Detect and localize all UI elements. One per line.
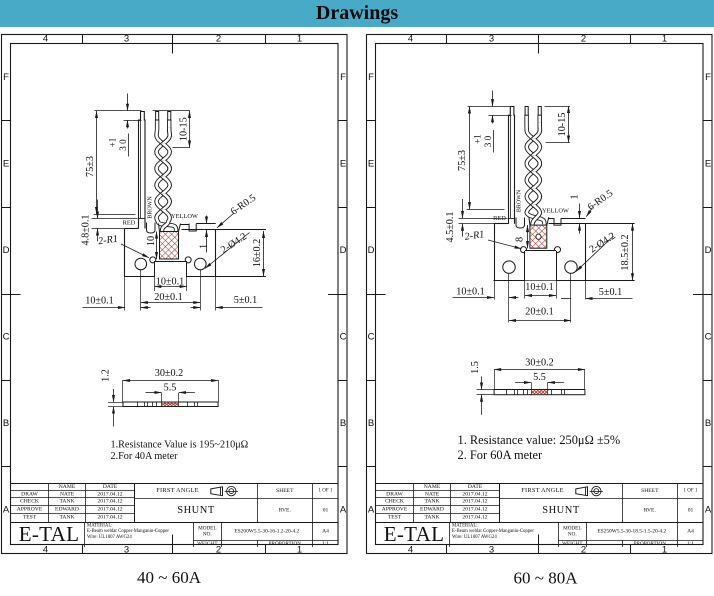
svg-text:WEIGHT: WEIGHT bbox=[197, 541, 218, 547]
svg-text:PROPORTION: PROPORTION bbox=[269, 541, 302, 547]
svg-text:E: E bbox=[340, 159, 346, 170]
svg-text:C: C bbox=[368, 332, 375, 343]
svg-text:4: 4 bbox=[43, 34, 48, 45]
svg-text:A4: A4 bbox=[322, 529, 329, 535]
svg-text:2017.04.12: 2017.04.12 bbox=[97, 499, 122, 505]
svg-text:10-15: 10-15 bbox=[179, 117, 190, 141]
svg-text:1.5: 1.5 bbox=[470, 361, 481, 374]
svg-text:APPROVE: APPROVE bbox=[17, 506, 43, 512]
svg-text:NAME: NAME bbox=[424, 484, 441, 490]
svg-text:18.5±0.2: 18.5±0.2 bbox=[620, 234, 631, 270]
svg-text:E-TAL: E-TAL bbox=[19, 522, 79, 546]
svg-text:+1: +1 bbox=[473, 134, 483, 144]
svg-text:1:1: 1:1 bbox=[687, 541, 694, 547]
svg-text:01: 01 bbox=[688, 508, 694, 514]
svg-text:SHEET: SHEET bbox=[276, 488, 294, 494]
svg-text:PROPORTION: PROPORTION bbox=[634, 541, 667, 547]
svg-text:2. For 60A meter: 2. For 60A meter bbox=[458, 448, 544, 462]
svg-text:C: C bbox=[3, 332, 10, 343]
svg-text:TEST: TEST bbox=[388, 515, 402, 521]
svg-text:DRAW: DRAW bbox=[21, 491, 38, 497]
svg-text:2-Ø4.2: 2-Ø4.2 bbox=[219, 231, 249, 256]
svg-text:2017.04.12: 2017.04.12 bbox=[462, 506, 487, 512]
svg-text:E: E bbox=[3, 159, 9, 170]
svg-text:MATERIAL:: MATERIAL: bbox=[87, 524, 113, 529]
svg-text:3 0: 3 0 bbox=[118, 139, 128, 151]
svg-text:A: A bbox=[340, 505, 347, 516]
svg-text:MATERIAL:: MATERIAL: bbox=[452, 524, 478, 529]
svg-text:E-TAL: E-TAL bbox=[384, 522, 444, 546]
svg-text:3: 3 bbox=[489, 34, 494, 45]
svg-text:DATE: DATE bbox=[468, 484, 483, 490]
svg-text:2: 2 bbox=[216, 34, 221, 45]
svg-text:SHEET: SHEET bbox=[641, 488, 659, 494]
svg-text:2: 2 bbox=[581, 34, 586, 45]
svg-text:4: 4 bbox=[408, 545, 413, 556]
svg-text:MODEL: MODEL bbox=[563, 525, 581, 531]
svg-text:1 OF 1: 1 OF 1 bbox=[684, 488, 698, 493]
svg-text:10±0.1: 10±0.1 bbox=[156, 276, 185, 287]
svg-text:1: 1 bbox=[297, 34, 302, 45]
svg-text:FIRST ANGLE: FIRST ANGLE bbox=[521, 487, 563, 494]
svg-text:20±0.1: 20±0.1 bbox=[525, 307, 554, 318]
svg-text:5.5: 5.5 bbox=[164, 383, 177, 394]
svg-text:2-R1: 2-R1 bbox=[464, 229, 485, 243]
svg-text:Wire: UL1007 AWG24: Wire: UL1007 AWG24 bbox=[452, 535, 497, 540]
svg-text:2-R1: 2-R1 bbox=[97, 234, 118, 248]
svg-text:E-Beam weldar Copper-Manganin-: E-Beam weldar Copper-Manganin-Copper bbox=[452, 529, 534, 534]
svg-text:NO.: NO. bbox=[568, 532, 577, 538]
svg-text:Wire: UL1007 AWG24: Wire: UL1007 AWG24 bbox=[87, 535, 132, 540]
svg-text:WEIGHT: WEIGHT bbox=[562, 541, 583, 547]
svg-text:ES250W5.5-30-18.5-1.5-20-4.2: ES250W5.5-30-18.5-1.5-20-4.2 bbox=[597, 529, 666, 535]
svg-text:2-Ø4.2: 2-Ø4.2 bbox=[588, 231, 618, 256]
svg-text:D: D bbox=[340, 245, 347, 256]
svg-text:5.5: 5.5 bbox=[533, 372, 546, 383]
svg-text:D: D bbox=[368, 245, 375, 256]
svg-text:A4: A4 bbox=[687, 529, 694, 535]
svg-text:10: 10 bbox=[146, 236, 157, 246]
svg-text:CHECK: CHECK bbox=[385, 499, 404, 505]
svg-text:10±0.1: 10±0.1 bbox=[525, 282, 554, 293]
svg-text:F: F bbox=[368, 72, 374, 83]
svg-text:4: 4 bbox=[408, 34, 413, 45]
svg-text:F: F bbox=[705, 72, 711, 83]
svg-text:SHUNT: SHUNT bbox=[177, 505, 215, 516]
svg-text:10±0.1: 10±0.1 bbox=[85, 296, 114, 307]
svg-text:E: E bbox=[705, 159, 711, 170]
svg-text:1.Resistance Value is 195~210μ: 1.Resistance Value is 195~210μΩ bbox=[111, 440, 249, 451]
svg-text:1 OF 1: 1 OF 1 bbox=[319, 488, 333, 493]
svg-text:A: A bbox=[705, 505, 712, 516]
svg-text:2017.04.12: 2017.04.12 bbox=[462, 499, 487, 505]
svg-text:2017.04.12: 2017.04.12 bbox=[97, 491, 122, 497]
svg-text:RVE.: RVE. bbox=[644, 508, 657, 514]
svg-text:C: C bbox=[340, 332, 347, 343]
svg-text:TANK: TANK bbox=[59, 515, 74, 521]
svg-text:30±0.2: 30±0.2 bbox=[155, 368, 184, 379]
svg-text:D: D bbox=[3, 245, 10, 256]
svg-text:10±0.1: 10±0.1 bbox=[456, 287, 485, 298]
svg-text:2017.04.12: 2017.04.12 bbox=[462, 515, 487, 521]
svg-text:6-R0.5: 6-R0.5 bbox=[586, 188, 615, 213]
svg-text:TANK: TANK bbox=[59, 499, 74, 505]
svg-text:NATE: NATE bbox=[60, 491, 75, 497]
svg-text:YELLOW: YELLOW bbox=[542, 208, 569, 215]
svg-text:1. Resistance value: 250μΩ ±5%: 1. Resistance value: 250μΩ ±5% bbox=[458, 433, 621, 447]
svg-text:RED: RED bbox=[123, 220, 136, 227]
svg-text:APPROVE: APPROVE bbox=[382, 506, 408, 512]
svg-text:1: 1 bbox=[199, 244, 210, 249]
svg-text:TANK: TANK bbox=[424, 515, 439, 521]
svg-text:60 ~ 80A: 60 ~ 80A bbox=[514, 569, 579, 588]
svg-text:1: 1 bbox=[569, 194, 580, 199]
svg-text:A: A bbox=[368, 505, 375, 516]
svg-text:B: B bbox=[705, 418, 711, 429]
svg-text:1:1: 1:1 bbox=[322, 541, 329, 547]
svg-text:4: 4 bbox=[43, 545, 48, 556]
svg-text:16±0.2: 16±0.2 bbox=[252, 239, 263, 268]
svg-text:YELLOW: YELLOW bbox=[171, 213, 198, 220]
svg-text:CHECK: CHECK bbox=[20, 499, 39, 505]
svg-text:3: 3 bbox=[124, 545, 129, 556]
svg-text:NATE: NATE bbox=[425, 491, 440, 497]
svg-text:20±0.1: 20±0.1 bbox=[154, 292, 183, 303]
svg-text:+1: +1 bbox=[107, 137, 117, 147]
svg-text:BROWN: BROWN bbox=[517, 189, 523, 212]
svg-text:F: F bbox=[3, 72, 9, 83]
svg-text:E: E bbox=[368, 159, 374, 170]
svg-text:EDWARD: EDWARD bbox=[420, 506, 444, 512]
svg-text:BROWN: BROWN bbox=[148, 196, 154, 219]
svg-text:B: B bbox=[3, 418, 9, 429]
svg-text:SHUNT: SHUNT bbox=[542, 505, 580, 516]
svg-text:4.5±0.1: 4.5±0.1 bbox=[445, 211, 456, 242]
svg-text:3 0: 3 0 bbox=[483, 135, 493, 147]
svg-text:2017.04.12: 2017.04.12 bbox=[97, 515, 122, 521]
svg-text:5±0.1: 5±0.1 bbox=[234, 295, 257, 306]
svg-text:DRAW: DRAW bbox=[386, 491, 403, 497]
svg-text:NO.: NO. bbox=[203, 532, 212, 538]
svg-text:TEST: TEST bbox=[23, 515, 37, 521]
svg-text:75±3: 75±3 bbox=[457, 150, 468, 171]
svg-text:8: 8 bbox=[515, 237, 526, 242]
svg-text:F: F bbox=[340, 72, 346, 83]
svg-text:2017.04.12: 2017.04.12 bbox=[97, 506, 122, 512]
svg-text:B: B bbox=[368, 418, 374, 429]
svg-text:D: D bbox=[705, 245, 712, 256]
svg-text:B: B bbox=[340, 418, 346, 429]
svg-text:C: C bbox=[705, 332, 712, 343]
svg-text:MODEL: MODEL bbox=[198, 525, 216, 531]
svg-text:ES200W5.5-30-16-1.2-20-4.2: ES200W5.5-30-16-1.2-20-4.2 bbox=[234, 529, 299, 535]
svg-text:30±0.2: 30±0.2 bbox=[525, 358, 554, 369]
svg-text:75±3: 75±3 bbox=[85, 156, 96, 177]
svg-text:NAME: NAME bbox=[59, 484, 76, 490]
svg-text:2.For 40A meter: 2.For 40A meter bbox=[111, 451, 179, 462]
svg-text:1: 1 bbox=[662, 34, 667, 45]
svg-text:2017.04.12: 2017.04.12 bbox=[462, 491, 487, 497]
svg-text:TANK: TANK bbox=[424, 499, 439, 505]
svg-text:DATE: DATE bbox=[103, 484, 118, 490]
svg-text:A: A bbox=[3, 505, 10, 516]
svg-text:4.8±0.1: 4.8±0.1 bbox=[81, 214, 92, 245]
svg-text:3: 3 bbox=[489, 545, 494, 556]
svg-text:10-15: 10-15 bbox=[557, 113, 568, 137]
svg-text:EDWARD: EDWARD bbox=[55, 506, 79, 512]
svg-text:5±0.1: 5±0.1 bbox=[599, 287, 622, 298]
svg-text:40 ~ 60A: 40 ~ 60A bbox=[137, 568, 202, 587]
svg-text:E-Beam weldar Copper-Manganin-: E-Beam weldar Copper-Manganin-Copper bbox=[87, 529, 169, 534]
svg-text:1.2: 1.2 bbox=[101, 369, 112, 382]
svg-text:RVE.: RVE. bbox=[279, 508, 292, 514]
svg-text:3: 3 bbox=[124, 34, 129, 45]
svg-text:01: 01 bbox=[323, 508, 329, 514]
svg-text:FIRST ANGLE: FIRST ANGLE bbox=[156, 487, 198, 494]
